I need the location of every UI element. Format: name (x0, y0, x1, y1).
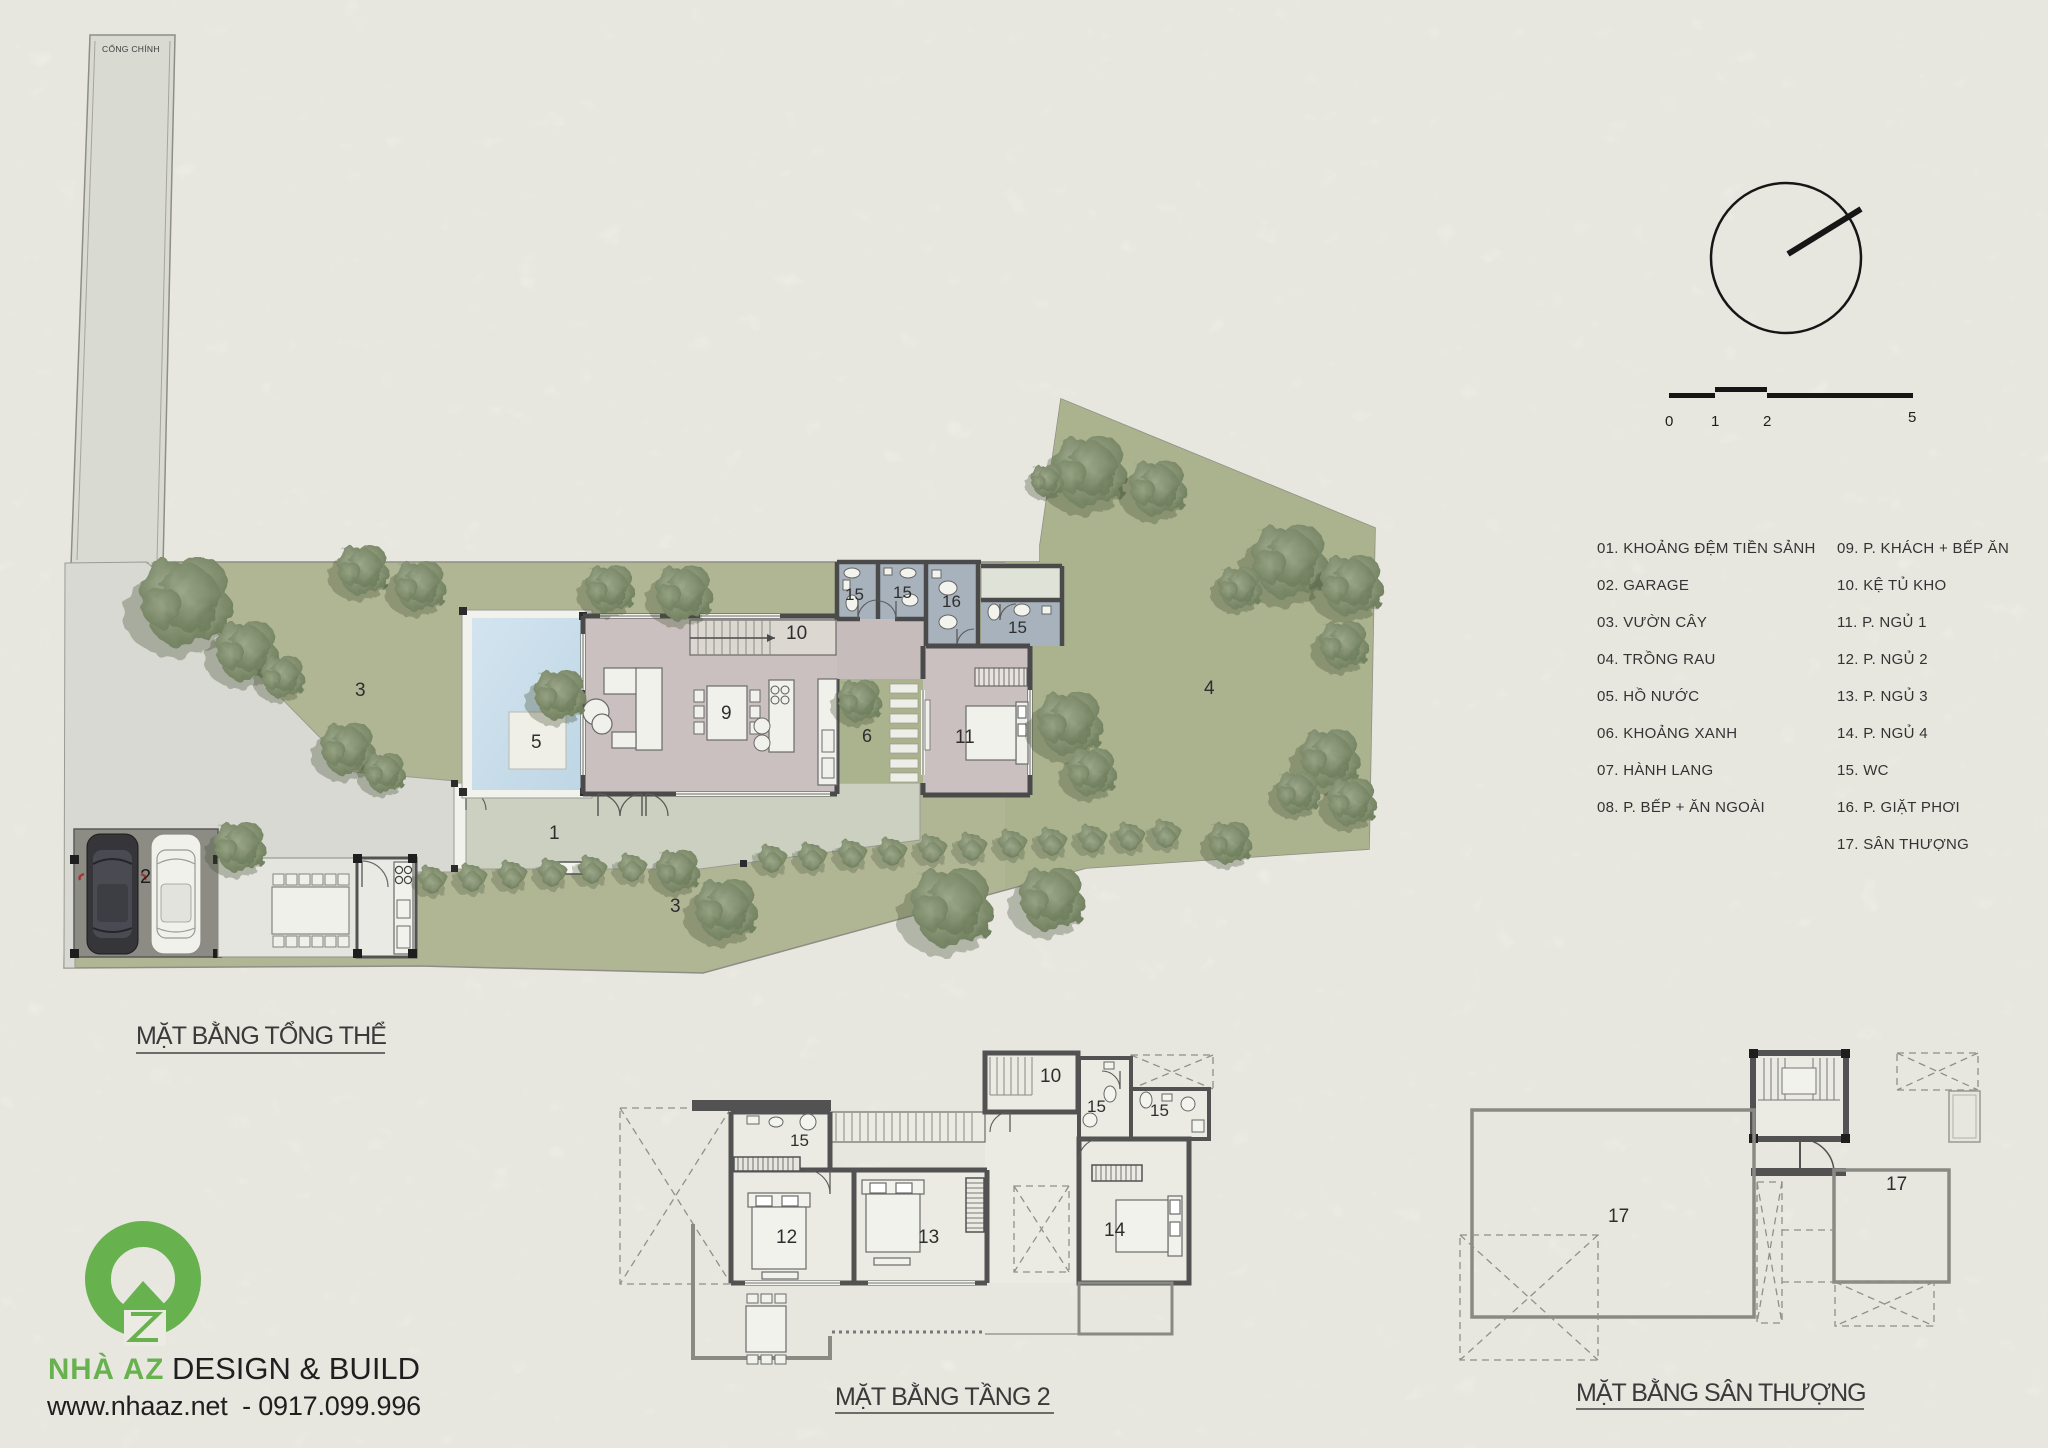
svg-text:12. P. NGỦ 2: 12. P. NGỦ 2 (1837, 650, 1928, 668)
svg-text:17: 17 (1886, 1174, 1907, 1195)
svg-text:14. P. NGỦ 4: 14. P. NGỦ 4 (1837, 724, 1928, 742)
svg-text:15: 15 (790, 1131, 809, 1150)
svg-text:3: 3 (670, 896, 681, 917)
svg-text:09. P. KHÁCH + BẾP ĂN: 09. P. KHÁCH + BẾP ĂN (1837, 540, 2009, 557)
svg-text:www.nhaaz.net - 0917.099.996: www.nhaaz.net - 0917.099.996 (46, 1391, 421, 1421)
svg-text:14: 14 (1104, 1220, 1126, 1241)
svg-text:5: 5 (531, 732, 542, 753)
svg-text:16. P. GIẶT PHƠI: 16. P. GIẶT PHƠI (1837, 799, 1960, 816)
svg-text:1: 1 (549, 823, 560, 844)
svg-text:07. HÀNH LANG: 07. HÀNH LANG (1597, 762, 1713, 779)
svg-text:12: 12 (776, 1227, 797, 1248)
svg-text:13: 13 (918, 1227, 939, 1248)
svg-text:2: 2 (140, 866, 151, 888)
svg-text:CỔNG CHÍNH: CỔNG CHÍNH (102, 43, 160, 54)
svg-text:11. P. NGỦ 1: 11. P. NGỦ 1 (1837, 613, 1927, 631)
svg-text:1: 1 (1711, 413, 1719, 430)
svg-text:02. GARAGE: 02. GARAGE (1597, 577, 1689, 594)
svg-text:04. TRỒNG RAU: 04. TRỒNG RAU (1597, 650, 1716, 668)
svg-text:MẶT BẰNG SÂN THƯỢNG: MẶT BẰNG SÂN THƯỢNG (1576, 1378, 1866, 1407)
svg-text:15: 15 (1008, 618, 1027, 637)
svg-text:9: 9 (721, 703, 732, 724)
svg-text:03. VƯỜN CÂY: 03. VƯỜN CÂY (1597, 614, 1707, 631)
svg-text:05. HỒ NƯỚC: 05. HỒ NƯỚC (1597, 687, 1699, 705)
svg-text:3: 3 (355, 680, 366, 701)
svg-text:17. SÂN THƯỢNG: 17. SÂN THƯỢNG (1837, 836, 1969, 853)
svg-text:4: 4 (1204, 678, 1215, 699)
svg-text:2: 2 (1763, 413, 1771, 430)
svg-text:16: 16 (942, 592, 961, 611)
svg-text:10: 10 (786, 623, 807, 644)
svg-text:13. P. NGỦ 3: 13. P. NGỦ 3 (1837, 687, 1928, 705)
svg-text:6: 6 (862, 726, 872, 746)
svg-text:MẶT BẰNG TẦNG 2: MẶT BẰNG TẦNG 2 (835, 1382, 1050, 1411)
svg-text:5: 5 (1908, 409, 1916, 426)
svg-text:15: 15 (845, 585, 864, 604)
svg-text:01. KHOẢNG ĐỆM TIỀN SẢNH: 01. KHOẢNG ĐỆM TIỀN SẢNH (1597, 540, 1816, 557)
svg-text:15. WC: 15. WC (1837, 762, 1889, 779)
svg-text:15: 15 (1087, 1097, 1106, 1116)
svg-text:10: 10 (1040, 1066, 1061, 1087)
svg-text:0: 0 (1665, 413, 1673, 430)
svg-text:06. KHOẢNG XANH: 06. KHOẢNG XANH (1597, 725, 1737, 742)
svg-text:17: 17 (1608, 1206, 1629, 1227)
svg-text:MẶT BẰNG TỔNG THỂ: MẶT BẰNG TỔNG THỂ (136, 1020, 386, 1050)
svg-text:15: 15 (893, 583, 912, 602)
svg-text:08. P. BẾP + ĂN NGOÀI: 08. P. BẾP + ĂN NGOÀI (1597, 799, 1765, 816)
svg-text:10. KỆ TỦ KHO: 10. KỆ TỦ KHO (1837, 576, 1947, 594)
svg-text:11: 11 (955, 727, 975, 748)
svg-text:DESIGN & BUILD: DESIGN & BUILD (172, 1351, 420, 1386)
svg-text:15: 15 (1150, 1101, 1169, 1120)
svg-text:NHÀ AZ: NHÀ AZ (48, 1352, 164, 1386)
